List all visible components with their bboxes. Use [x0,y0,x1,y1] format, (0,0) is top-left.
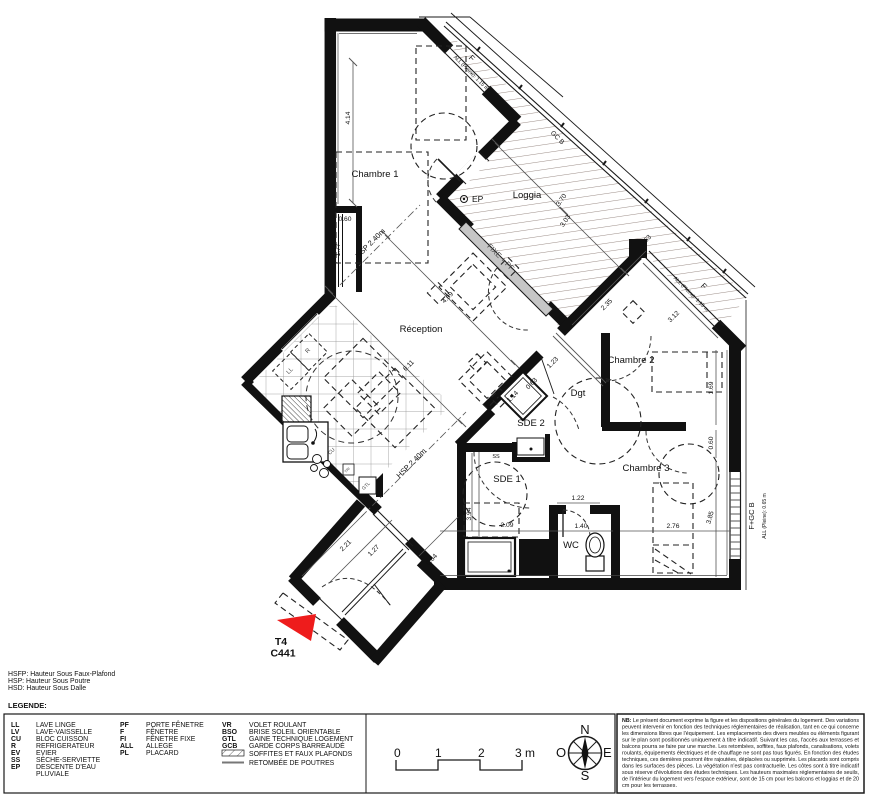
svg-text:F: F [120,729,124,736]
svg-text:SDE 1: SDE 1 [493,474,520,485]
svg-text:3.94: 3.94 [466,507,473,520]
svg-text:NB: Le présent document exprim: NB: Le présent document exprime la figur… [622,718,859,724]
svg-text:T4: T4 [275,636,287,648]
svg-text:VR: VR [222,722,232,729]
svg-text:1.40: 1.40 [574,523,587,530]
svg-text:R: R [11,743,16,750]
svg-text:F+GC B: F+GC B [747,502,756,529]
svg-text:EV: EV [11,750,21,757]
svg-text:balcons pourra se faire par un: balcons pourra se faire par une marche. … [622,744,859,750]
svg-text:REFRIGERATEUR: REFRIGERATEUR [36,743,94,750]
svg-text:4.14: 4.14 [345,111,352,124]
svg-text:EP: EP [472,194,484,204]
svg-text:EVIER: EVIER [36,750,57,757]
svg-text:LAVE-VAISSELLE: LAVE-VAISSELLE [36,729,92,736]
svg-text:E: E [603,745,612,760]
svg-text:1.77: 1.77 [335,243,342,256]
svg-text:FÊNETRE FIXE: FÊNETRE FIXE [146,734,196,743]
svg-text:SOFFITES ET FAUX PLAFONDS: SOFFITES ET FAUX PLAFONDS [249,751,353,758]
svg-text:roulants, équipements électriq: roulants, équipements électriques et de … [622,751,859,757]
svg-text:LV: LV [11,729,20,736]
svg-text:Chambre 2: Chambre 2 [608,355,655,366]
svg-text:3 m: 3 m [515,746,535,760]
svg-text:EP: EP [11,764,21,771]
svg-text:BLOC CUISSON: BLOC CUISSON [36,736,88,743]
svg-text:1.69: 1.69 [708,381,715,394]
svg-text:FÊNETRE: FÊNETRE [146,727,179,736]
svg-text:HSFP: Hauteur Sous Faux-Plafon: HSFP: Hauteur Sous Faux-Plafond [8,671,115,678]
svg-text:Chambre 3: Chambre 3 [623,463,670,474]
svg-text:1.22: 1.22 [571,495,584,502]
svg-text:PLACARD: PLACARD [146,750,179,757]
svg-text:SS: SS [11,757,21,764]
svg-text:Loggia: Loggia [513,190,542,201]
svg-text:cm pour les terrasses.: cm pour les terrasses. [622,783,677,789]
svg-text:peuvent intervenir en fonction: peuvent intervenir en fonction des techn… [622,725,859,731]
svg-text:2.09: 2.09 [500,522,513,529]
svg-text:BRISE SOLEIL ORIENTABLE: BRISE SOLEIL ORIENTABLE [249,729,341,736]
svg-text:GCB: GCB [222,743,237,750]
svg-text:RETOMBÉE DE POUTRES: RETOMBÉE DE POUTRES [249,758,335,767]
svg-text:FI: FI [120,736,126,743]
svg-text:de l'intérieur du logement ver: de l'intérieur du logement vers l'espace… [622,777,859,783]
svg-text:HSP: Hauteur Sous Poutre: HSP: Hauteur Sous Poutre [8,678,91,685]
svg-text:Chambre 1: Chambre 1 [352,169,399,180]
svg-text:2.76: 2.76 [666,523,679,530]
svg-text:BSO: BSO [222,729,238,736]
svg-text:sous réserve d'évolutions des: sous réserve d'évolutions des études tec… [622,770,859,776]
svg-text:SS: SS [492,454,500,460]
svg-text:PF: PF [120,722,129,729]
svg-text:SDE 2: SDE 2 [517,418,544,429]
svg-text:GARDE CORPS BARREAUDÉ: GARDE CORPS BARREAUDÉ [249,741,345,750]
svg-text:ALL (Pleine): 0.65 m: ALL (Pleine): 0.65 m [762,493,768,538]
svg-text:Réception: Réception [400,324,443,335]
svg-text:HSD: Hauteur Sous Dalle: HSD: Hauteur Sous Dalle [8,685,86,692]
svg-text:dans les surfaces des pièces.: dans les surfaces des pièces. La végétat… [622,764,859,770]
svg-text:Dgt: Dgt [571,388,586,399]
svg-text:LAVE LINGE: LAVE LINGE [36,722,76,729]
svg-text:S: S [581,768,590,783]
svg-text:PORTE FÊNETRE: PORTE FÊNETRE [146,720,204,729]
svg-text:les dimensions libres que l'éq: les dimensions libres que l'équipement. … [622,731,859,737]
svg-text:techniques, ces dernières pour: techniques, ces dernières pourront être … [622,757,859,763]
svg-text:O: O [556,745,566,760]
svg-text:PL: PL [120,750,129,757]
svg-text:WC: WC [563,540,579,551]
svg-text:1: 1 [435,746,442,760]
svg-text:GAINE TECHNIQUE LOGEMENT: GAINE TECHNIQUE LOGEMENT [249,736,354,743]
svg-text:LL: LL [11,722,19,729]
svg-text:GTL: GTL [222,736,236,743]
svg-text:sur le plan sont positionnés u: sur le plan sont positionnés uniquement … [622,738,859,744]
svg-text:C441: C441 [270,648,295,660]
svg-text:SÈCHE-SERVIETTE: SÈCHE-SERVIETTE [36,755,101,764]
svg-text:CU: CU [11,736,21,743]
svg-text:VOLET ROULANT: VOLET ROULANT [249,722,307,729]
svg-text:LEGENDE:: LEGENDE: [8,701,47,710]
svg-text:2: 2 [478,746,485,760]
svg-text:PLUVIALE: PLUVIALE [36,771,69,778]
svg-text:0.60: 0.60 [338,216,351,223]
svg-text:ALLEGE: ALLEGE [146,743,173,750]
svg-text:N: N [580,722,589,737]
svg-text:0: 0 [394,746,401,760]
svg-text:0.60: 0.60 [708,436,715,449]
svg-text:ALL: ALL [120,743,133,750]
svg-text:DESCENTE D'EAU: DESCENTE D'EAU [36,764,96,771]
